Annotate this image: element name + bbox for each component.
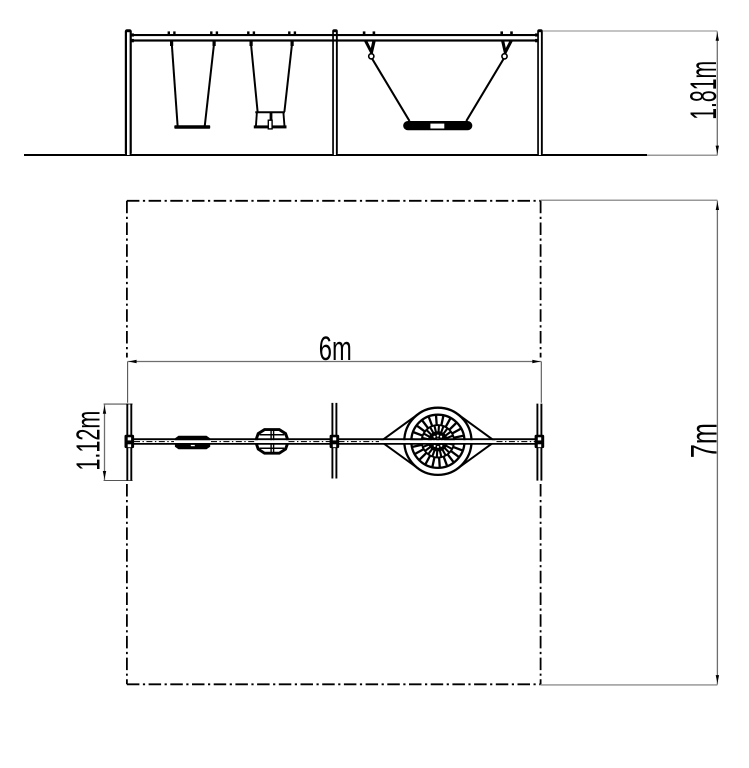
svg-text:6m: 6m <box>319 330 352 368</box>
svg-text:7m: 7m <box>683 423 724 458</box>
svg-text:1.81m: 1.81m <box>683 61 724 120</box>
svg-text:1.12m: 1.12m <box>70 411 107 471</box>
